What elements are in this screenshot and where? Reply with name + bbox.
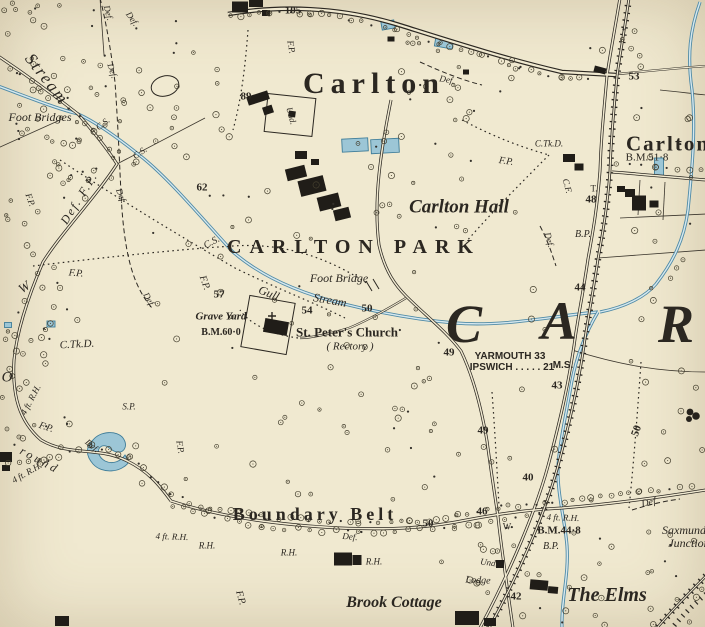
map-label-carlton-village: Carlton <box>303 69 445 99</box>
map-label-rh-5: R.H. <box>199 542 216 551</box>
map-label-n-50-belt: 50 <box>423 519 434 530</box>
conifer-clump-icon <box>686 409 700 422</box>
map-label-ctkd-1: C.Tk.D. <box>59 339 94 352</box>
map-label-t-mark: T. <box>590 185 597 194</box>
map-label-bm-44-8: B.M.44·8 <box>537 526 580 537</box>
map-label-n-50-stream: 50 <box>362 304 373 315</box>
map-label-rh-4: 4 ft. R.H. <box>546 513 579 523</box>
map-label-fp-6: F.P. <box>174 440 185 455</box>
map-label-junction: Junction <box>668 537 705 549</box>
map-label-fp-1: F.P. <box>285 40 296 55</box>
map-label-w-gate: W <box>503 523 512 532</box>
map-label-n-49-b: 49 <box>478 426 489 437</box>
railway-junction-branch <box>657 576 705 627</box>
map-label-n-62: 62 <box>197 183 208 194</box>
map-label-def-9: Def. <box>342 532 358 542</box>
map-label-milestone-ms: M.S. <box>553 361 574 371</box>
map-label-n-48: 48 <box>586 195 597 206</box>
map-label-bm-60-0: B.M.60·0 <box>201 328 240 338</box>
map-label-fp-5: F.P. <box>498 156 514 168</box>
map-label-yarmouth-miles: YARMOUTH 33 <box>475 352 546 362</box>
map-label-n-53: 53 <box>629 72 640 83</box>
map-label-st-peters-church: St. Peter's Church <box>296 326 398 339</box>
map-label-n-54: 54 <box>302 306 313 317</box>
map-label-n-89: 89 <box>241 92 252 103</box>
map-label-foot-bridge: Foot Bridge <box>310 272 368 284</box>
oval-enclosure <box>149 73 181 100</box>
map-label-big-letter-c: C <box>446 297 482 351</box>
map-label-carlton-park: CARLTON PARK <box>227 237 481 257</box>
map-label-ctkd-2: C.Tk.D. <box>535 140 563 149</box>
map-label-big-letter-r: R <box>658 297 694 351</box>
map-label-rectory: ( Rectory ) <box>326 342 373 353</box>
map-label-fp-3: F.P. <box>68 268 83 279</box>
map-label-n-57: 57 <box>214 290 225 301</box>
map-label-rh-6: R.H. <box>281 549 298 558</box>
map-label-ipswich-miles: IPSWICH . . . . . 21 <box>470 363 554 373</box>
map-label-o-big: O <box>2 371 13 386</box>
map-label-bp-2: B.P. <box>543 542 559 552</box>
map-label-n-43: 43 <box>552 381 563 392</box>
map-label-n-44: 44 <box>575 283 586 294</box>
map-label-n-40: 40 <box>523 473 534 484</box>
map-label-n-42: 42 <box>511 592 522 603</box>
map-label-brook-cottage: Brook Cottage <box>346 595 442 611</box>
map-label-the-elms: The Elms <box>567 585 646 605</box>
map-label-saxmundham: Saxmund <box>662 524 705 536</box>
map-label-grave-yard: Grave Yard <box>195 312 246 323</box>
map-label-lodge: Lodge <box>465 575 490 586</box>
map-label-carlton-hall: Carlton Hall <box>409 198 509 217</box>
map-label-bm-51-8: B.M.51·8 <box>626 153 669 164</box>
map-label-n-46: 46 <box>477 507 488 518</box>
map-label-n-49-a: 49 <box>444 348 455 359</box>
map-label-rh-7: R.H. <box>366 558 383 567</box>
footpath-layer <box>33 30 641 508</box>
map-label-foot-bridges: Foot Bridges <box>9 111 72 123</box>
map-label-sp: S.P. <box>122 403 135 412</box>
os-map: CarltonCarltonCarlton HallCARLTON PARKCA… <box>0 0 705 627</box>
map-label-n-105: 105 <box>285 6 302 17</box>
map-label-bp-1: B.P. <box>575 230 591 240</box>
map-label-rh-3: 4 ft. R.H. <box>155 532 188 542</box>
map-label-big-letter-a: A <box>541 294 577 348</box>
map-label-boundary-belt: Boundary Belt <box>233 505 398 523</box>
